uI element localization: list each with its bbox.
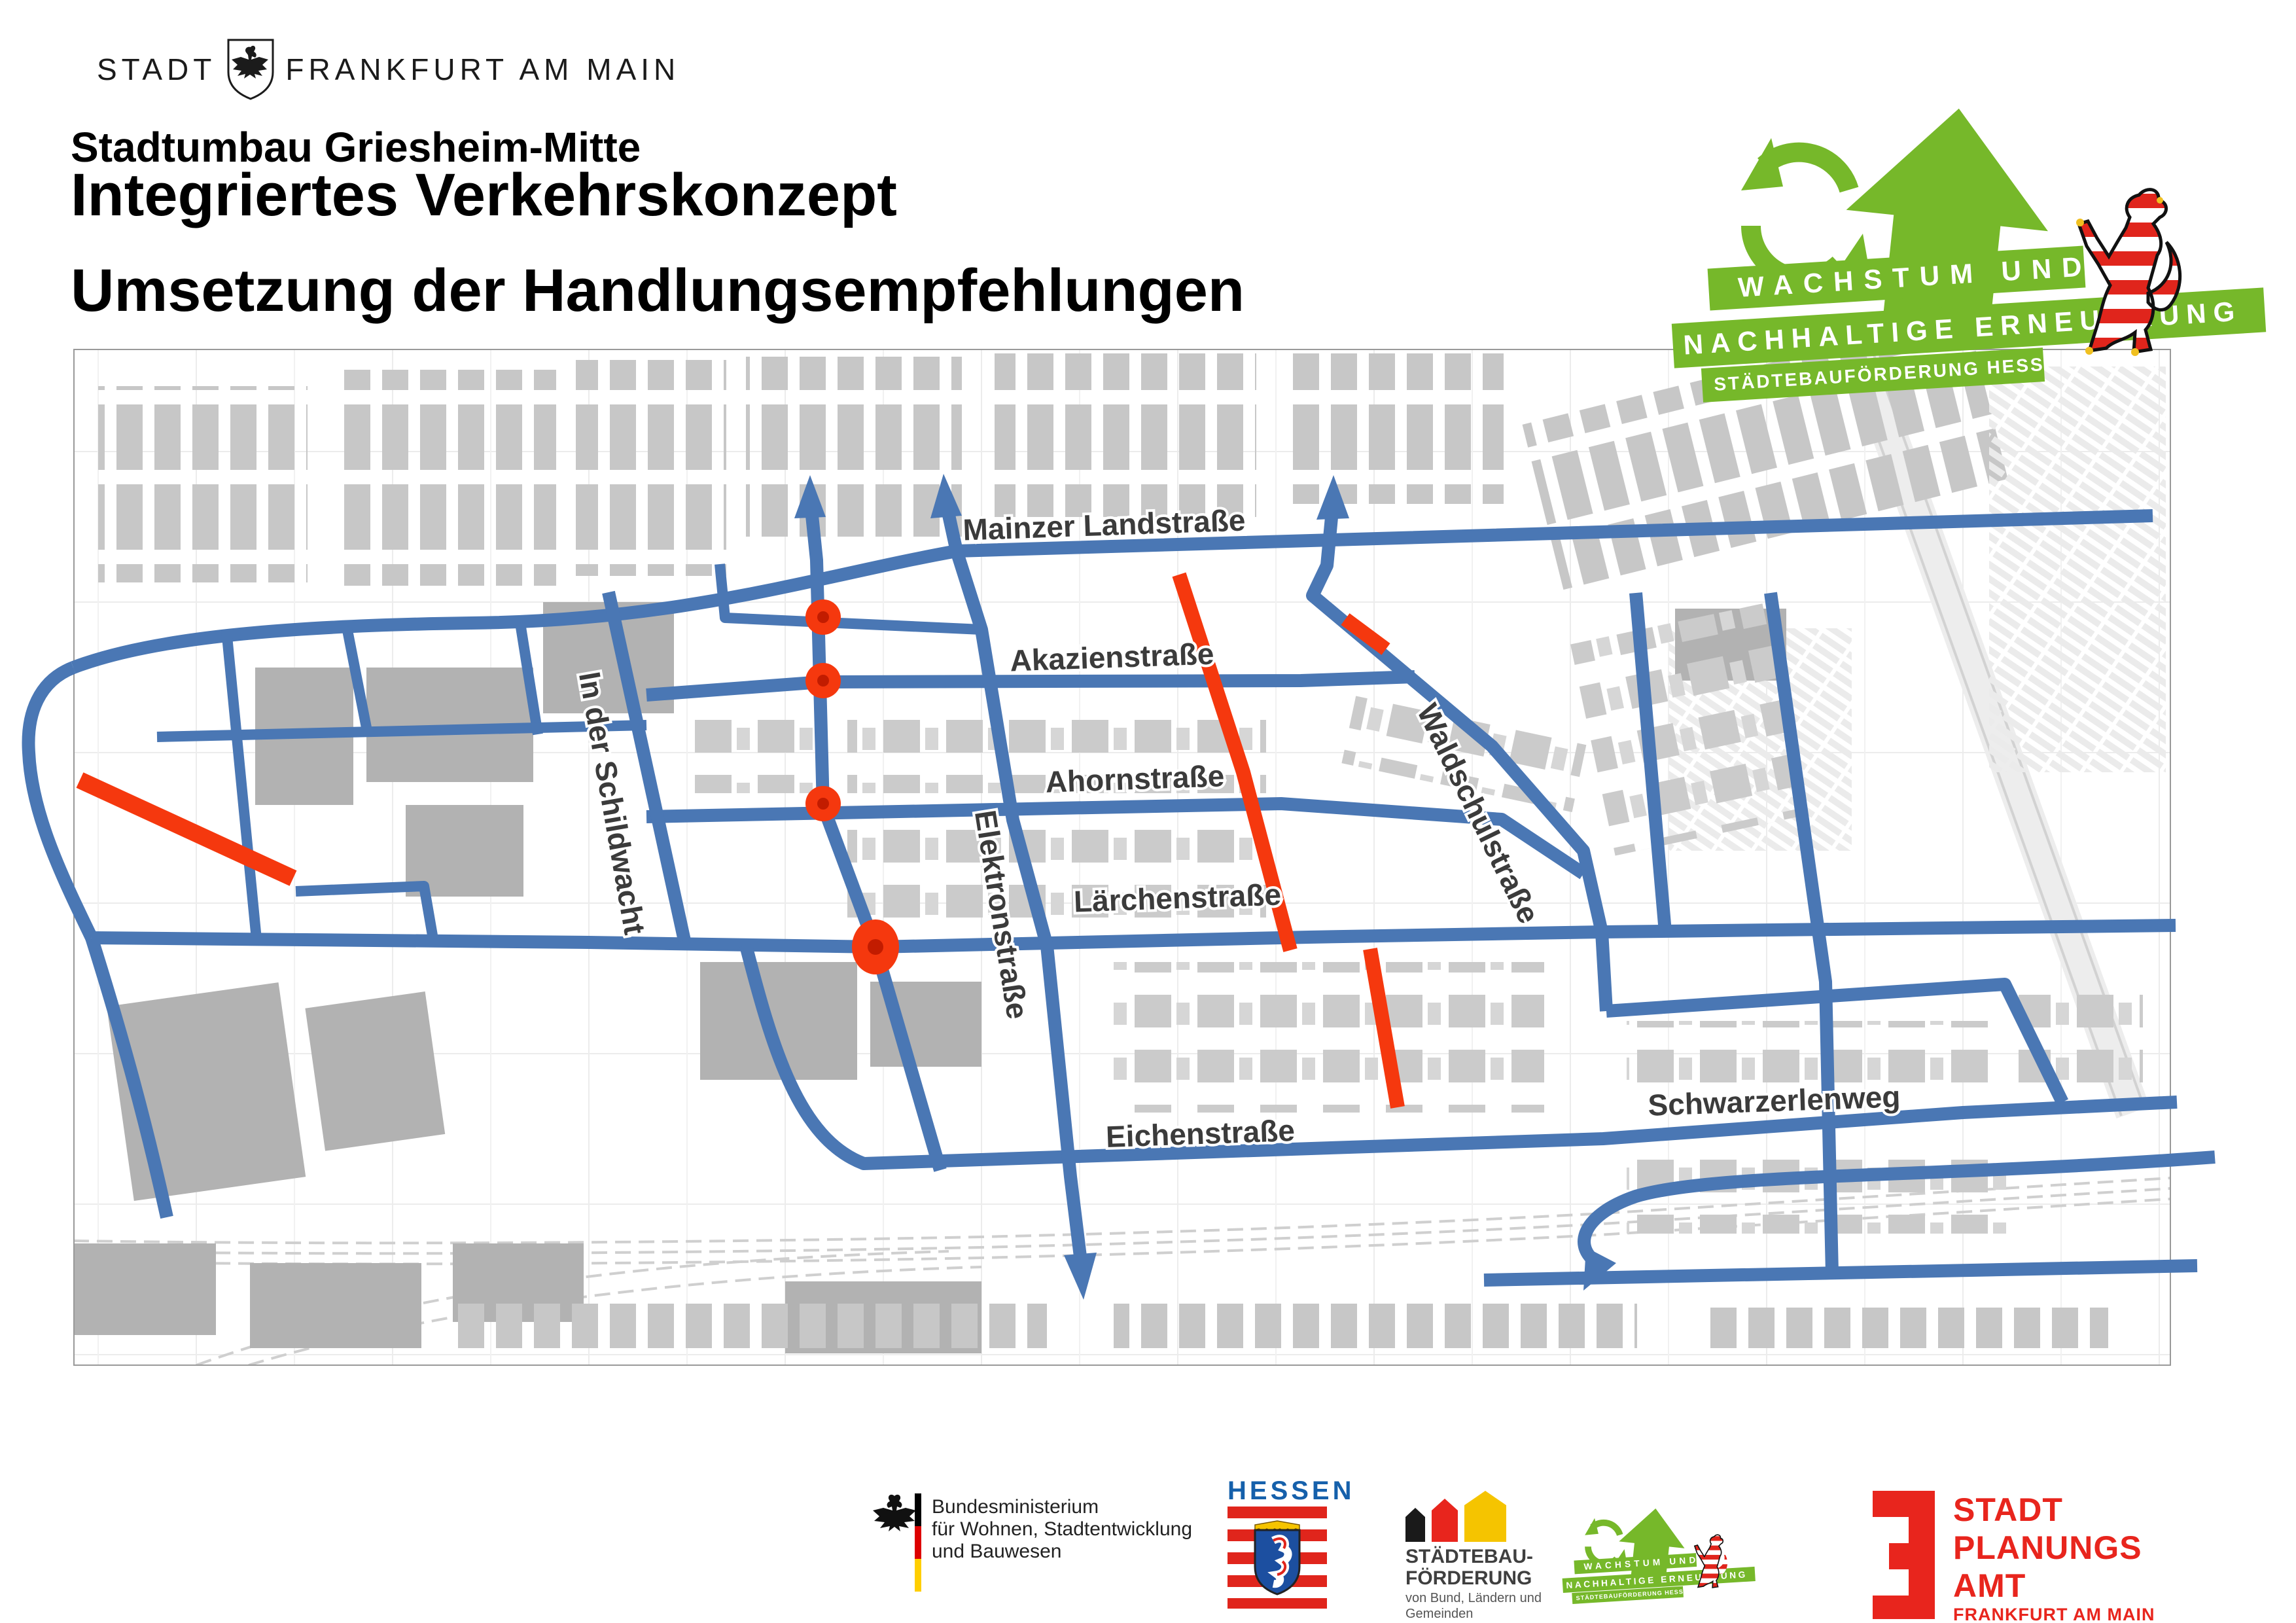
bund-flag-gold (915, 1559, 921, 1592)
stadtplanungsamt-glyph-icon (1873, 1491, 1938, 1619)
page-title-line2: Integriertes Verkehrskonzept (71, 161, 897, 230)
staedtebaufoerderung-logo-text: STÄDTEBAU- FÖRDERUNG (1405, 1546, 1533, 1589)
poster-page: Mainzer Landstraße Akazienstraße Ahornst… (0, 0, 2296, 1623)
bund-flag-black (915, 1493, 921, 1526)
staedtebaufoerderung-logo-subtext: von Bund, Ländern und Gemeinden (1405, 1590, 1542, 1622)
bund-line1: Bundesministerium (932, 1496, 1192, 1518)
hessen-coat-of-arms-icon (1227, 1507, 1327, 1609)
bund-flag-red (915, 1526, 921, 1559)
street-label-eichen: Eichenstraße (1105, 1113, 1296, 1154)
staedtebau-line4: Gemeinden (1405, 1606, 1542, 1622)
hessen-logo-title: HESSEN (1227, 1476, 1355, 1506)
bund-line2: für Wohnen, Stadtentwicklung (932, 1518, 1192, 1541)
staedtebaufoerderung-houses-icon (1405, 1491, 1549, 1543)
map-background-layer (62, 313, 2170, 1365)
stadtplanungsamt-logo-subtext: FRANKFURT AM MAIN (1953, 1605, 2155, 1623)
frankfurt-city-logo: Stadt Frankfurt am Main (97, 38, 680, 101)
growth-program-logo-small: WACHSTUM UND NACHHALTIGE ERNEUERUNG STÄD… (1563, 1493, 1754, 1623)
staedtebau-line2: FÖRDERUNG (1405, 1567, 1533, 1589)
street-label-akazien: Akazienstraße (1010, 637, 1215, 678)
spa-line3: AMT (1953, 1567, 2142, 1605)
bund-ministry-logo-text: Bundesministerium für Wohnen, Stadtentwi… (932, 1496, 1192, 1563)
spa-line1: STADT (1953, 1491, 2142, 1529)
city-logo-name: Frankfurt am Main (285, 52, 680, 87)
stadtplanungsamt-logo-text: STADT PLANUNGS AMT (1953, 1491, 2142, 1605)
staedtebau-line3: von Bund, Ländern und (1405, 1590, 1542, 1606)
hessen-lion-icon (1687, 1531, 1729, 1592)
street-label-ahorn: Ahornstraße (1045, 758, 1225, 799)
street-label-laerchen: Lärchenstraße (1073, 877, 1282, 918)
hessen-lion-icon (2055, 177, 2186, 366)
city-logo-stadt: Stadt (97, 52, 216, 87)
growth-program-logo: WACHSTUM UND NACHHALTIGE ERNEUERUNG STÄD… (1672, 62, 2261, 468)
frankfurt-eagle-shield-icon (226, 38, 275, 101)
staedtebau-line1: STÄDTEBAU- (1405, 1546, 1533, 1567)
page-subtitle: Umsetzung der Handlungsempfehlungen (71, 257, 1245, 325)
spa-line2: PLANUNGS (1953, 1529, 2142, 1567)
bund-line3: und Bauwesen (932, 1541, 1192, 1563)
